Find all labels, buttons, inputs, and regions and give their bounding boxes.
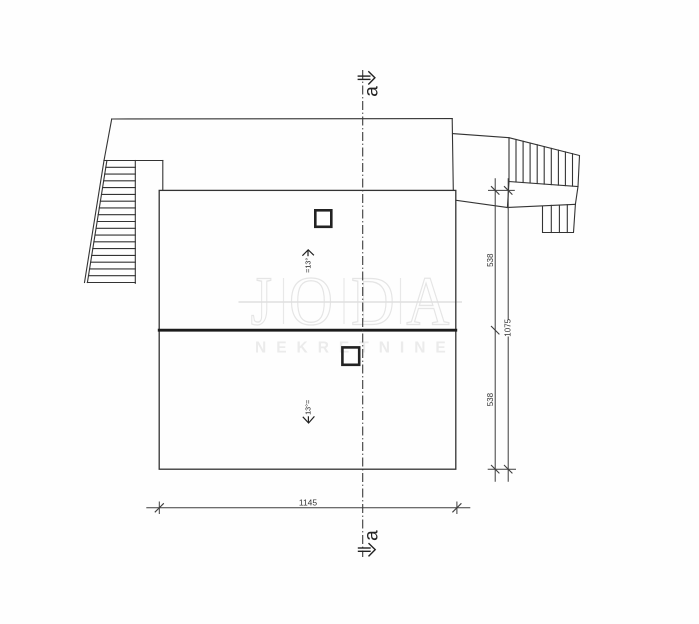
- svg-text:538: 538: [486, 392, 495, 406]
- svg-text:=13°: =13°: [303, 258, 312, 273]
- svg-text:538: 538: [486, 253, 495, 267]
- svg-text:a: a: [361, 530, 382, 541]
- svg-text:1145: 1145: [299, 498, 318, 508]
- svg-text:a: a: [361, 86, 382, 97]
- svg-text:13°=: 13°=: [304, 400, 313, 415]
- svg-text:1075: 1075: [504, 318, 513, 336]
